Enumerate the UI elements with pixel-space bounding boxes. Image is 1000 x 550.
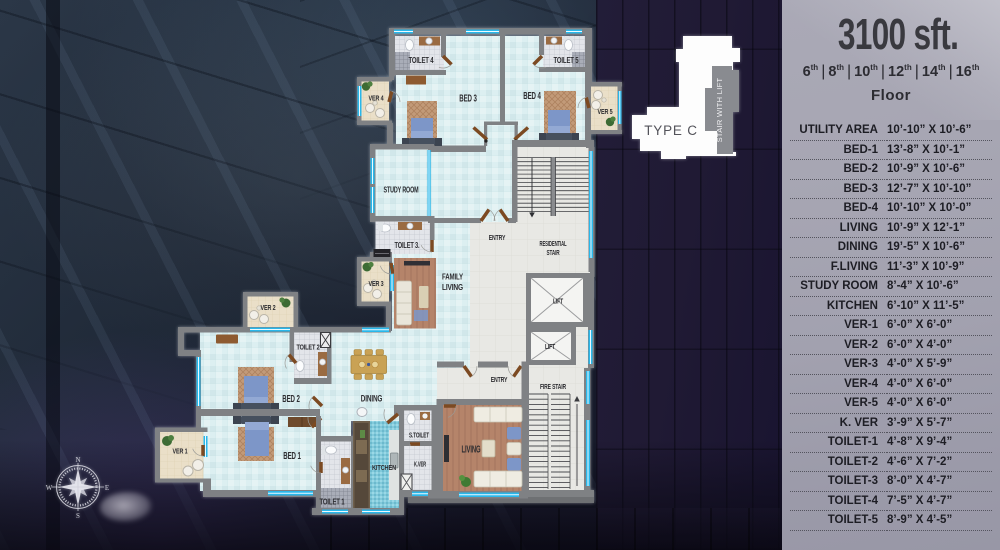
svg-text:TOILET 2: TOILET 2 [297,343,320,352]
svg-text:VER 3: VER 3 [369,279,384,288]
svg-text:LIFT: LIFT [553,299,564,306]
svg-text:STAIR: STAIR [547,248,560,257]
svg-text:VER 2: VER 2 [261,303,276,312]
svg-text:BED 3: BED 3 [459,94,477,105]
svg-text:DINING: DINING [361,394,383,404]
svg-text:TOILET 3.: TOILET 3. [395,241,420,250]
svg-text:N: N [75,456,80,464]
svg-text:S.TOILET: S.TOILET [409,433,430,440]
svg-text:ENTRY: ENTRY [489,233,506,242]
svg-text:E: E [105,484,109,492]
svg-text:STUDY ROOM: STUDY ROOM [384,185,419,195]
svg-text:FIRE STAIR: FIRE STAIR [540,382,567,391]
svg-text:BED 1: BED 1 [283,451,301,462]
svg-text:BED 2: BED 2 [282,394,300,405]
svg-text:LIVING: LIVING [442,283,463,292]
svg-text:K.VER: K.VER [414,462,426,469]
svg-text:FAMILY: FAMILY [442,273,464,282]
svg-text:ENTRY: ENTRY [491,375,508,384]
svg-text:RESIDENTIAL: RESIDENTIAL [540,239,567,248]
svg-text:LIFT: LIFT [545,344,556,351]
svg-text:KITCHEN: KITCHEN [372,463,396,472]
svg-text:VER 5: VER 5 [598,107,613,116]
svg-text:BED 4: BED 4 [523,91,541,102]
svg-text:TOILET 1: TOILET 1 [320,498,346,507]
svg-text:LIVING: LIVING [462,445,481,456]
svg-text:VER 4: VER 4 [369,94,385,103]
svg-text:STAIR WITH LIFT: STAIR WITH LIFT [715,77,724,142]
svg-text:W: W [46,484,53,492]
svg-text:TYPE C: TYPE C [644,123,698,138]
svg-text:VER 1: VER 1 [173,447,188,456]
svg-text:TOILET 4: TOILET 4 [409,56,435,65]
svg-text:TOILET 5: TOILET 5 [554,56,580,65]
svg-text:S: S [76,512,80,520]
